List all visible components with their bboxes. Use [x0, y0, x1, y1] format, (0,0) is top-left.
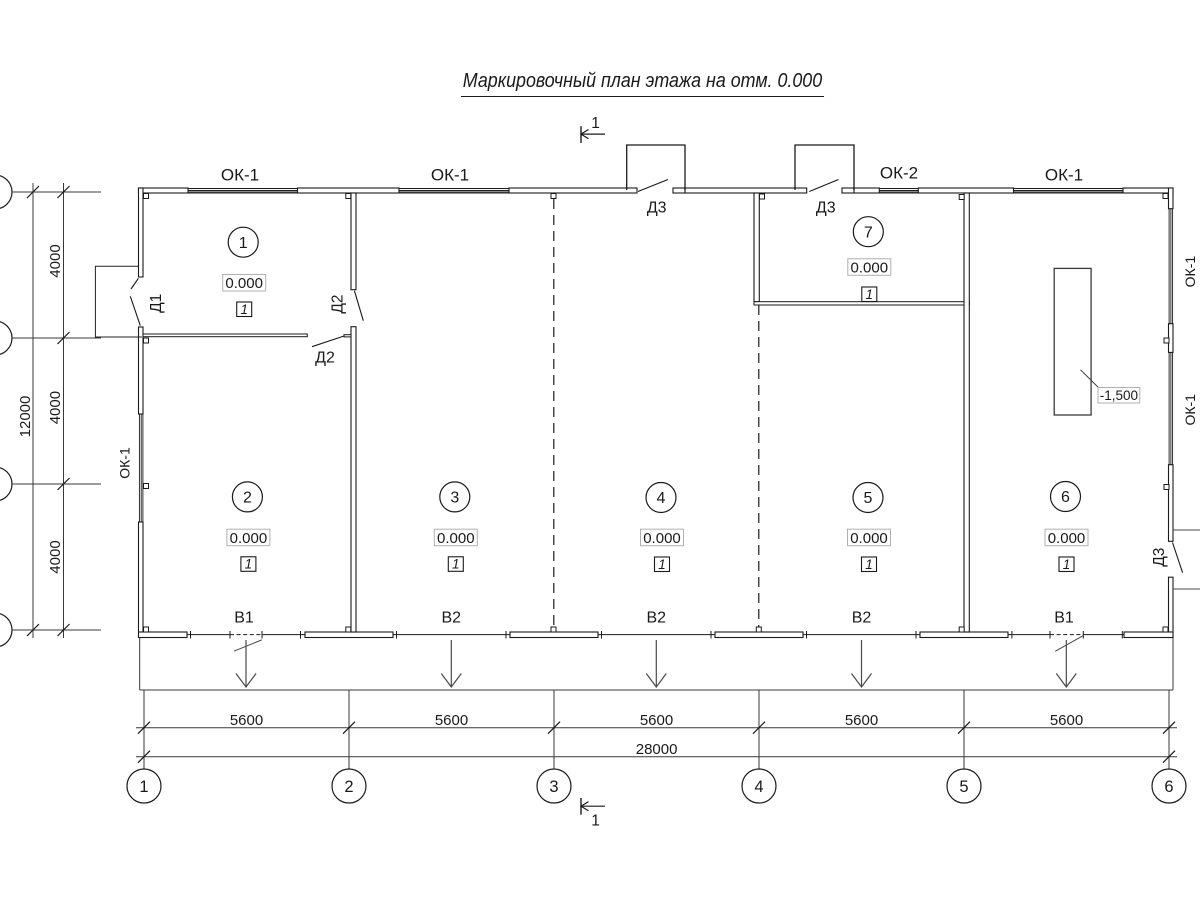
svg-text:1: 1 — [239, 235, 248, 252]
svg-text:ОК-1: ОК-1 — [116, 447, 132, 479]
svg-text:ОК-1: ОК-1 — [431, 166, 469, 185]
svg-text:7: 7 — [864, 224, 873, 241]
svg-text:5600: 5600 — [845, 712, 878, 729]
svg-text:1: 1 — [240, 302, 248, 317]
svg-text:0.000: 0.000 — [230, 530, 268, 547]
svg-text:5: 5 — [864, 490, 873, 507]
svg-text:0.000: 0.000 — [437, 530, 475, 547]
svg-text:Д1: Д1 — [148, 294, 165, 313]
svg-text:5: 5 — [959, 778, 968, 796]
svg-text:3: 3 — [549, 778, 558, 796]
svg-text:0.000: 0.000 — [850, 530, 888, 547]
svg-text:3: 3 — [450, 490, 459, 507]
svg-text:4000: 4000 — [47, 391, 64, 424]
svg-text:4: 4 — [657, 490, 666, 507]
svg-text:0.000: 0.000 — [225, 275, 263, 292]
svg-text:ОК-1: ОК-1 — [1182, 394, 1198, 426]
svg-text:4000: 4000 — [47, 540, 64, 573]
svg-text:1: 1 — [866, 287, 874, 302]
svg-text:В2: В2 — [442, 610, 462, 627]
svg-text:Д3: Д3 — [1151, 548, 1168, 567]
svg-text:Д3: Д3 — [647, 200, 667, 217]
svg-text:ОК-1: ОК-1 — [1045, 166, 1083, 185]
svg-text:ОК-1: ОК-1 — [1182, 256, 1198, 288]
svg-text:5600: 5600 — [230, 712, 263, 729]
svg-text:12000: 12000 — [17, 396, 34, 438]
svg-text:Д2: Д2 — [315, 350, 335, 367]
svg-text:5600: 5600 — [435, 712, 468, 729]
svg-text:4: 4 — [754, 778, 763, 796]
svg-text:2: 2 — [344, 778, 353, 796]
svg-text:5600: 5600 — [640, 712, 673, 729]
svg-text:Д3: Д3 — [816, 200, 836, 217]
svg-text:В2: В2 — [647, 610, 667, 627]
svg-text:6: 6 — [1164, 778, 1173, 796]
svg-text:0.000: 0.000 — [1048, 530, 1086, 547]
svg-text:В2: В2 — [852, 610, 872, 627]
svg-text:1: 1 — [139, 778, 148, 796]
svg-text:28000: 28000 — [636, 741, 678, 758]
svg-text:-1,500: -1,500 — [1100, 388, 1138, 403]
svg-text:1: 1 — [1063, 557, 1071, 572]
svg-text:1: 1 — [658, 557, 666, 572]
svg-text:ОК-1: ОК-1 — [221, 166, 259, 185]
svg-text:1: 1 — [865, 557, 873, 572]
svg-text:1: 1 — [591, 115, 600, 132]
svg-text:1: 1 — [452, 557, 460, 572]
svg-text:0.000: 0.000 — [643, 530, 681, 547]
svg-text:5600: 5600 — [1050, 712, 1083, 729]
svg-text:1: 1 — [591, 813, 600, 830]
svg-text:1: 1 — [245, 557, 253, 572]
svg-text:ОК-2: ОК-2 — [880, 164, 918, 183]
svg-text:0.000: 0.000 — [851, 260, 889, 277]
svg-text:Д2: Д2 — [329, 294, 346, 313]
svg-text:В1: В1 — [234, 610, 254, 627]
svg-text:6: 6 — [1061, 489, 1070, 506]
svg-text:2: 2 — [243, 490, 252, 507]
svg-text:В1: В1 — [1054, 610, 1074, 627]
svg-text:4000: 4000 — [47, 244, 64, 277]
